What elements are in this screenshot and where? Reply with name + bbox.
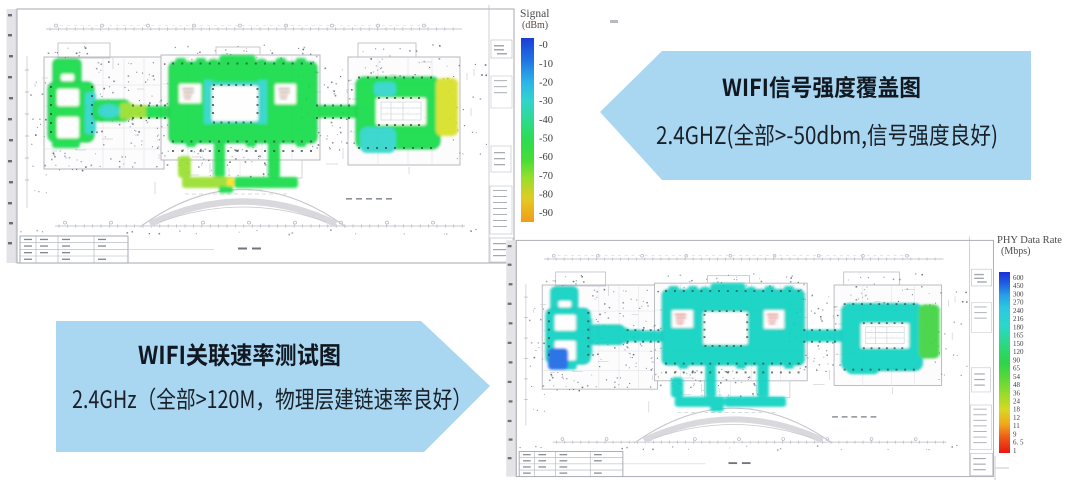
- svg-text:-90: -90: [539, 208, 553, 219]
- svg-text:-20: -20: [539, 78, 553, 89]
- svg-text:300: 300: [1013, 290, 1024, 298]
- svg-text:-10: -10: [539, 59, 553, 70]
- svg-text:120: 120: [1013, 348, 1024, 356]
- svg-text:240: 240: [1013, 307, 1024, 315]
- svg-text:180: 180: [1013, 323, 1024, 331]
- svg-text:-80: -80: [539, 190, 553, 201]
- svg-text:90: 90: [1013, 356, 1021, 364]
- svg-text:(dBm): (dBm): [522, 20, 548, 31]
- svg-text:24: 24: [1013, 398, 1021, 406]
- svg-text:1: 1: [1013, 447, 1017, 455]
- svg-text:-60: -60: [539, 152, 553, 163]
- svg-text:-50: -50: [539, 134, 553, 145]
- svg-text:600: 600: [1013, 274, 1024, 282]
- svg-text:54: 54: [1013, 373, 1021, 381]
- svg-text:9: 9: [1013, 431, 1017, 439]
- svg-text:(Mbps): (Mbps): [1001, 246, 1030, 257]
- svg-text:65: 65: [1013, 365, 1021, 373]
- svg-text:11: 11: [1013, 422, 1020, 430]
- svg-text:PHY Data Rate: PHY Data Rate: [997, 235, 1062, 246]
- svg-text:450: 450: [1013, 282, 1024, 290]
- svg-text:216: 216: [1013, 315, 1024, 323]
- svg-text:-40: -40: [539, 115, 553, 126]
- svg-text:165: 165: [1013, 332, 1024, 340]
- svg-text:6. 5: 6. 5: [1013, 439, 1024, 447]
- svg-text:36: 36: [1013, 389, 1021, 397]
- svg-text:150: 150: [1013, 340, 1024, 348]
- svg-text:-70: -70: [539, 171, 553, 182]
- svg-text:18: 18: [1013, 406, 1021, 414]
- svg-text:-0: -0: [539, 40, 548, 51]
- svg-text:-30: -30: [539, 96, 553, 107]
- svg-text:Signal: Signal: [520, 8, 549, 20]
- svg-text:12: 12: [1013, 414, 1021, 422]
- svg-text:270: 270: [1013, 299, 1024, 307]
- svg-text:48: 48: [1013, 381, 1021, 389]
